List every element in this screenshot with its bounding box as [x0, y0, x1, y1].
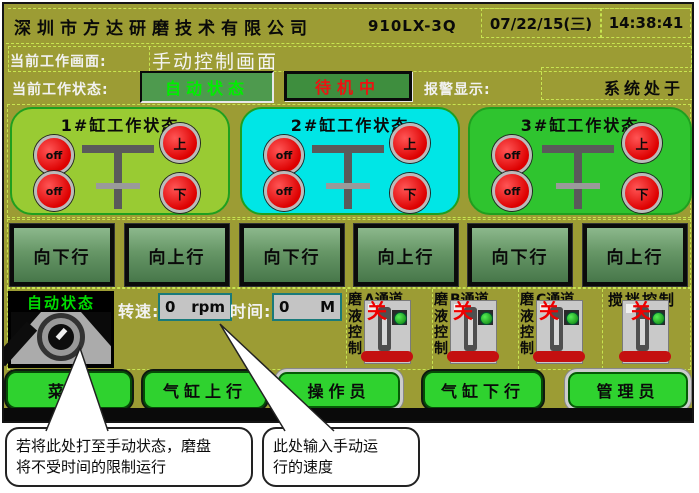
- time-input[interactable]: 0 M: [272, 293, 342, 321]
- speed-callout-line2: 行的速度: [273, 457, 409, 478]
- motion-button-3-up[interactable]: 向上行: [583, 224, 687, 286]
- stir-control-switch[interactable]: 关: [622, 300, 669, 364]
- channel-c-switch[interactable]: 关: [536, 300, 583, 364]
- motion-button-2-up[interactable]: 向上行: [354, 224, 458, 286]
- switch-base: [447, 351, 499, 362]
- channel-b-state: 关: [453, 295, 473, 324]
- motion-button-1-up[interactable]: 向上行: [125, 224, 229, 286]
- cylinder-3-lamp-up: 上: [622, 123, 662, 163]
- channel-a-col: 制: [348, 338, 362, 358]
- channel-c-col: 制: [520, 338, 534, 358]
- hmi-screen: 深圳市方达研磨技术有限公司 910LX-3Q 07/22/15(三) 14:38…: [2, 2, 694, 423]
- speed-value: 0: [165, 298, 175, 316]
- status-label: 当前工作状态:: [12, 79, 109, 99]
- page: { "header": { "company": "深圳市方达研磨技术有限公司"…: [0, 0, 699, 493]
- divider: [518, 289, 519, 369]
- switch-base: [533, 351, 585, 362]
- standby-status-button[interactable]: 待机中: [284, 71, 412, 101]
- motion-button-1-down[interactable]: 向下行: [10, 224, 114, 286]
- channel-a-state: 关: [367, 295, 387, 324]
- date-text: 07/22/15(三): [490, 13, 592, 34]
- alarm-label: 报警显示:: [424, 79, 491, 99]
- channel-c-state: 关: [539, 295, 559, 324]
- stir-state: 关: [631, 295, 651, 324]
- motion-button-2-down[interactable]: 向下行: [240, 224, 344, 286]
- press-icon: [326, 183, 370, 189]
- screen-bottom-frame: [4, 408, 692, 421]
- model-number: 910LX-3Q: [368, 17, 457, 35]
- press-icon: [96, 183, 140, 189]
- green-lamp-icon: [480, 312, 493, 325]
- cylinder-1-panel: 1#缸工作状态 off off 上 下: [10, 107, 230, 215]
- operator-button[interactable]: 操作员: [275, 369, 403, 411]
- channel-a-switch[interactable]: 关: [364, 300, 411, 364]
- time-value: 0: [279, 298, 289, 316]
- knob-callout: 若将此处打至手动状态，磨盘 将不受时间的限制运行: [5, 427, 253, 487]
- cylinder-2-lamp-up: 上: [390, 123, 430, 163]
- green-lamp-icon: [394, 312, 407, 325]
- knob-graphic: [11, 312, 111, 364]
- switch-base: [619, 351, 671, 362]
- cylinder-3-panel: 3#缸工作状态 off off 上 下: [468, 107, 692, 215]
- date-display: 07/22/15(三): [481, 8, 601, 38]
- menu-button[interactable]: 菜单: [6, 371, 132, 409]
- cylinder-3-lamp-off-bottom: off: [492, 171, 532, 211]
- cylinder-2-lamp-down: 下: [390, 173, 430, 213]
- press-icon: [556, 183, 600, 189]
- knob-callout-line2: 将不受时间的限制运行: [16, 457, 242, 478]
- switch-base: [361, 351, 413, 362]
- cylinder-1-lamp-off-bottom: off: [34, 171, 74, 211]
- divider: [6, 43, 690, 44]
- cylinder-1-lamp-up: 上: [160, 123, 200, 163]
- time-display: 14:38:41: [601, 8, 691, 38]
- speed-callout: 此处输入手动运 行的速度: [262, 427, 420, 487]
- divider: [432, 289, 433, 369]
- divider: [346, 289, 347, 369]
- green-lamp-icon: [566, 312, 579, 325]
- speed-label: 转速:: [118, 298, 159, 322]
- knob-callout-line1: 若将此处打至手动状态，磨盘: [16, 436, 242, 457]
- cylinder-2-panel: 2#缸工作状态 off off 上 下: [240, 107, 460, 215]
- time-text: 14:38:41: [609, 14, 684, 32]
- cylinder-2-lamp-off-bottom: off: [264, 171, 304, 211]
- speed-unit: rpm: [191, 298, 225, 316]
- cylinder-down-button[interactable]: 气缸下行: [423, 371, 543, 409]
- time-unit: M: [320, 298, 335, 316]
- admin-button[interactable]: 管理员: [565, 369, 691, 411]
- speed-input[interactable]: 0 rpm: [158, 293, 232, 321]
- current-screen-label: 当前工作画面:: [10, 51, 107, 71]
- knob-state-label: 自动状态: [8, 292, 114, 313]
- motion-button-3-down[interactable]: 向下行: [468, 224, 572, 286]
- channel-b-switch[interactable]: 关: [450, 300, 497, 364]
- press-icon: [344, 145, 352, 209]
- cylinder-1-lamp-down: 下: [160, 173, 200, 213]
- knob-handle-icon: [2, 321, 37, 366]
- speed-callout-line1: 此处输入手动运: [273, 436, 409, 457]
- current-screen-value: 手动控制画面: [152, 47, 278, 74]
- cylinder-up-button[interactable]: 气缸上行: [143, 371, 267, 409]
- mode-selector-knob[interactable]: 自动状态: [8, 291, 114, 368]
- divider: [149, 47, 150, 71]
- mode-status-button[interactable]: 自动状态: [140, 71, 274, 103]
- press-icon: [114, 145, 122, 209]
- press-icon: [574, 145, 582, 209]
- cylinder-3-lamp-down: 下: [622, 173, 662, 213]
- knob-wing-icon: [81, 312, 111, 350]
- cylinder-3-lamp-off-top: off: [492, 135, 532, 175]
- time-label: 时间:: [230, 298, 271, 322]
- alarm-marquee-text: 系统处于: [604, 75, 684, 99]
- divider: [602, 289, 603, 369]
- cylinder-2-lamp-off-top: off: [264, 135, 304, 175]
- channel-b-col: 制: [434, 338, 448, 358]
- green-lamp-icon: [652, 312, 665, 325]
- cylinder-1-lamp-off-top: off: [34, 135, 74, 175]
- company-title: 深圳市方达研磨技术有限公司: [14, 14, 313, 39]
